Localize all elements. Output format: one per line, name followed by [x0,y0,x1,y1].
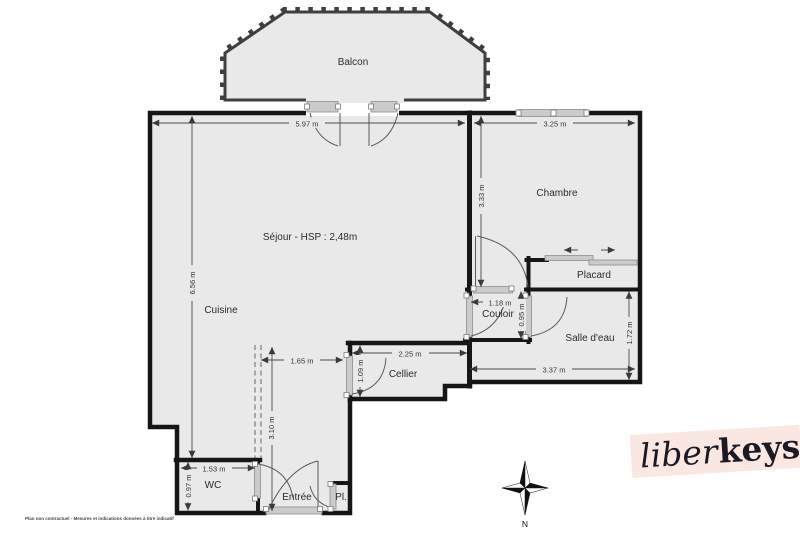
room-label-balcon: Balcon [338,57,369,68]
svg-text:1.53 m: 1.53 m [203,465,226,474]
cellier-door [347,356,353,395]
svg-text:3.37 m: 3.37 m [543,366,566,375]
entrance-door-sill [266,507,322,514]
room-label-sejour: Séjour - HSP : 2,48m [263,232,357,243]
svg-text:1.18 m: 1.18 m [489,299,512,308]
wc-door [255,464,261,498]
chambre-door-sill [474,287,513,294]
room-label-cuisine: Cuisine [204,305,238,316]
room-label-chambre: Chambre [536,188,578,199]
balcony-side-window-left [307,102,338,113]
compass-rose: N [502,461,548,529]
svg-text:1.65 m: 1.65 m [291,357,314,366]
room-label-wc: WC [205,480,222,491]
placard-sliding-door-right [589,260,637,265]
room-label-salle-deau: Salle d'eau [565,333,614,344]
liberkeys-logo: liberkeys [630,425,800,478]
compass-north-label: N [522,519,528,529]
svg-text:0.97 m: 0.97 m [184,475,193,498]
floor-plan: Balcon [0,0,800,533]
svg-text:3.33 m: 3.33 m [477,185,486,208]
logo-text-script: liber [639,432,721,476]
svg-text:1.72 m: 1.72 m [625,322,634,345]
disclaimer-text: Plan non contractuel - Mesures et indica… [25,516,174,521]
svg-text:2.25 m: 2.25 m [399,350,422,359]
svg-text:5.97 m: 5.97 m [296,120,319,129]
room-label-placard: Placard [577,270,611,281]
svg-text:3.10 m: 3.10 m [267,417,276,440]
balcony: Balcon [225,12,485,100]
floor-plan-page: Balcon [0,0,800,533]
balcony-side-window-right [371,102,397,113]
room-label-pl: Pl. [335,492,347,503]
balcony-floor [225,12,485,100]
placard-sliding-door-left [545,256,593,261]
svg-text:0.95 m: 0.95 m [517,304,526,327]
logo-text-bold: keys [717,427,800,471]
salle-deau-door [526,296,532,337]
svg-text:1.09 m: 1.09 m [356,360,365,383]
svg-text:3.25 m: 3.25 m [544,120,567,129]
room-label-entree: Entrée [282,492,312,503]
svg-text:6.56 m: 6.56 m [188,272,197,295]
room-label-couloir: Couloir [482,309,514,320]
room-label-cellier: Cellier [389,369,418,380]
